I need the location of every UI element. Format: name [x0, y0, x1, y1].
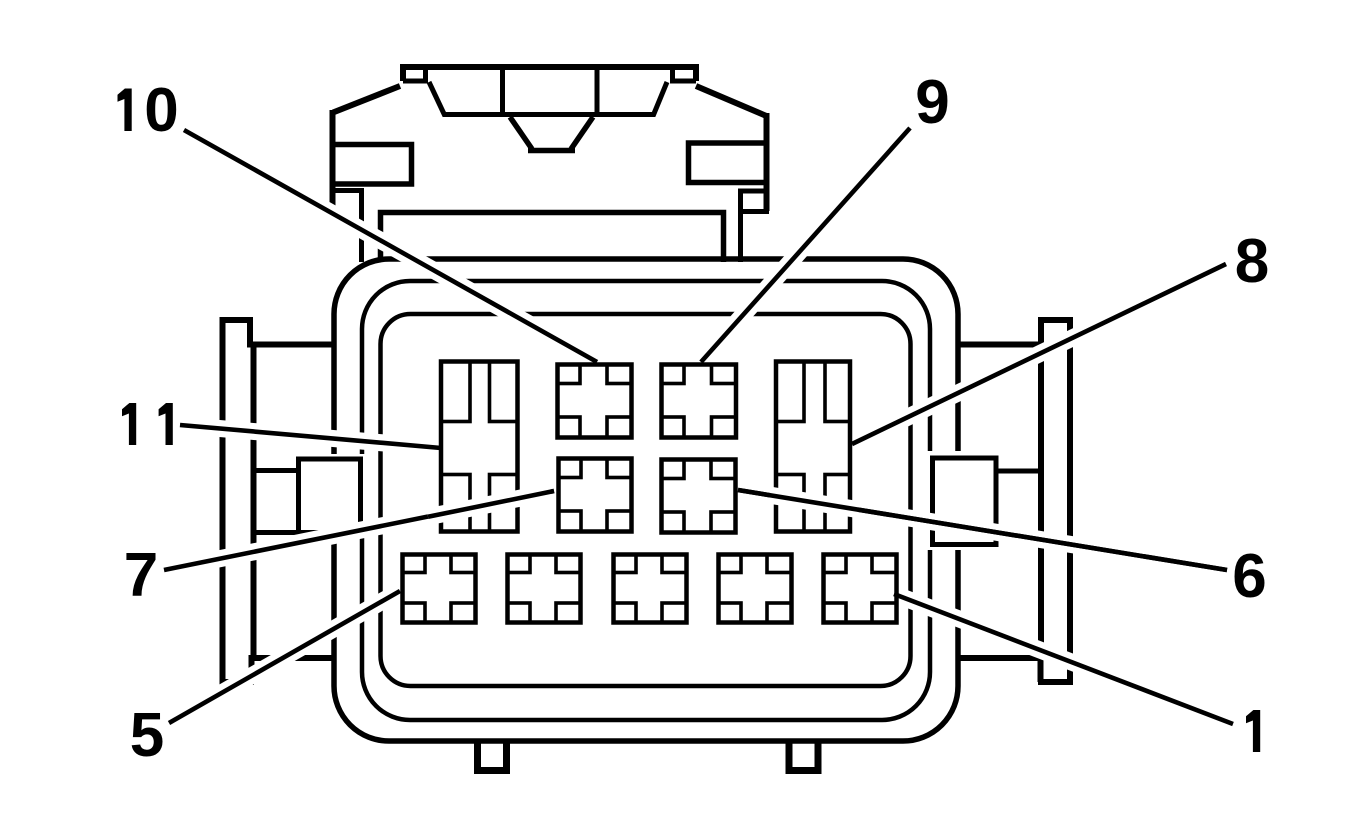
svg-text:9: 9: [915, 68, 949, 137]
svg-text:5: 5: [130, 701, 164, 770]
svg-text:0: 0: [144, 76, 178, 145]
svg-text:8: 8: [1235, 227, 1269, 296]
svg-text:6: 6: [1232, 542, 1266, 611]
svg-text:7: 7: [124, 541, 158, 610]
